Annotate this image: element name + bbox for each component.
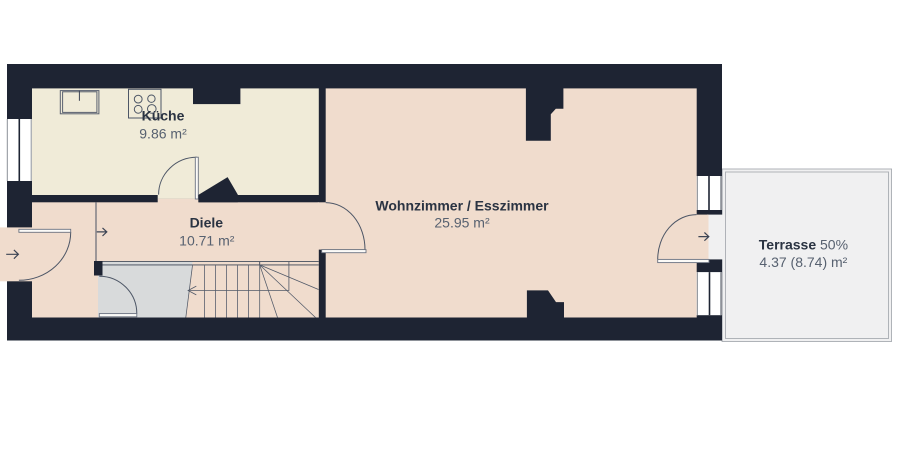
svg-text:Diele: Diele [190, 215, 224, 231]
svg-text:Wohnzimmer / Esszimmer: Wohnzimmer / Esszimmer [375, 198, 549, 214]
svg-text:4.37 (8.74) m²: 4.37 (8.74) m² [759, 254, 847, 270]
svg-text:10.71 m²: 10.71 m² [179, 233, 235, 249]
svg-text:Küche: Küche [142, 108, 185, 124]
svg-text:9.86 m²: 9.86 m² [139, 126, 187, 142]
svg-text:25.95 m²: 25.95 m² [434, 214, 490, 230]
svg-text:Terrasse 50%: Terrasse 50% [759, 237, 848, 253]
